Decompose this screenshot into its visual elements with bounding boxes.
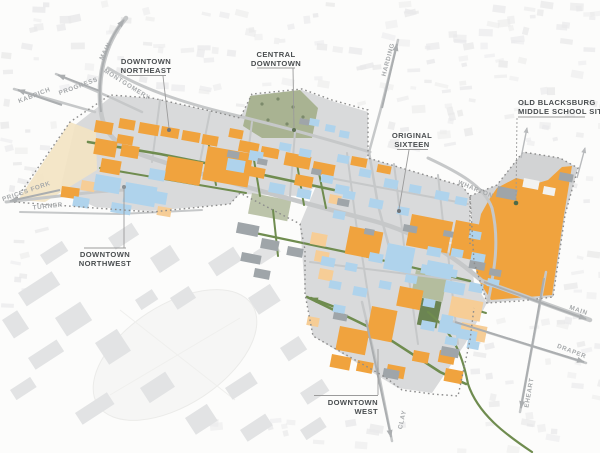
building [586,292,596,299]
building [479,29,493,37]
building [34,57,39,60]
building [212,47,219,54]
building [158,47,164,54]
building [43,2,49,7]
building [578,61,586,66]
building [19,273,27,279]
building [50,121,57,129]
building [25,129,30,132]
building [447,118,454,124]
building [576,132,584,138]
building [227,49,237,56]
building [537,9,544,16]
building [399,1,412,8]
label-dot [397,209,401,213]
building [497,19,510,28]
building [551,429,558,435]
building [545,358,551,365]
building [286,419,295,425]
svg-text:DOWNTOWN: DOWNTOWN [328,398,378,407]
building [14,240,25,244]
label-dot [514,201,519,206]
building [470,368,480,374]
svg-text:NORTHWEST: NORTHWEST [79,259,132,268]
building [424,80,431,83]
building [313,13,319,18]
label-dot [167,128,171,132]
building [40,145,50,151]
building [262,82,271,86]
building [464,127,474,136]
building [537,424,546,433]
building [410,86,416,90]
building [355,441,368,449]
building [594,343,600,349]
building [3,99,10,107]
building [440,130,447,135]
label-dot [122,185,126,189]
building [32,7,45,13]
building [556,24,567,31]
svg-text:OLD BLACKSBURG: OLD BLACKSBURG [518,98,596,107]
building [525,412,533,420]
building [197,45,210,50]
building [539,122,551,129]
building [60,16,72,24]
building [3,70,13,75]
svg-text:DOWNTOWN: DOWNTOWN [121,57,171,66]
central-park-area [243,90,318,138]
building [530,15,536,19]
building [589,16,595,20]
building [279,39,286,43]
building [547,87,555,95]
svg-text:SIXTEEN: SIXTEEN [394,140,429,149]
svg-text:NORTHEAST: NORTHEAST [121,66,172,75]
building [248,27,254,33]
building [303,16,310,24]
building [586,176,593,181]
building [489,401,500,407]
building [574,290,582,293]
building [457,448,466,453]
building [0,121,9,129]
building [583,47,595,52]
building [143,42,152,46]
building [453,34,467,42]
building [317,43,328,50]
building [564,316,573,324]
svg-text:ORIGINAL: ORIGINAL [392,131,432,140]
building [156,82,169,89]
svg-text:WEST: WEST [354,407,378,416]
building [204,57,215,62]
building [583,199,590,203]
building [13,162,22,166]
building [583,12,595,17]
building [274,38,280,45]
building [383,243,415,274]
building [71,42,85,49]
building [407,68,420,72]
map-canvas: MAIN PROGRESS KABRICH MONTGOMERY PRICES … [0,0,600,453]
building [576,5,582,11]
building [372,64,381,70]
svg-text:MIDDLE SCHOOL SITE: MIDDLE SCHOOL SITE [518,107,600,116]
building [171,84,185,91]
building [480,43,487,50]
building [492,5,506,14]
svg-text:CENTRAL: CENTRAL [256,50,295,59]
building [485,373,493,380]
building [1,52,12,59]
building [1,303,14,308]
building [313,440,325,445]
svg-text:DOWNTOWN: DOWNTOWN [251,59,301,68]
label-dot [292,128,296,132]
building [85,63,95,71]
building [254,34,262,41]
building [15,148,28,155]
svg-text:DOWNTOWN: DOWNTOWN [80,250,130,259]
building [412,105,426,114]
building [459,81,466,86]
downtown-plan-map: MAIN PROGRESS KABRICH MONTGOMERY PRICES … [0,0,600,453]
